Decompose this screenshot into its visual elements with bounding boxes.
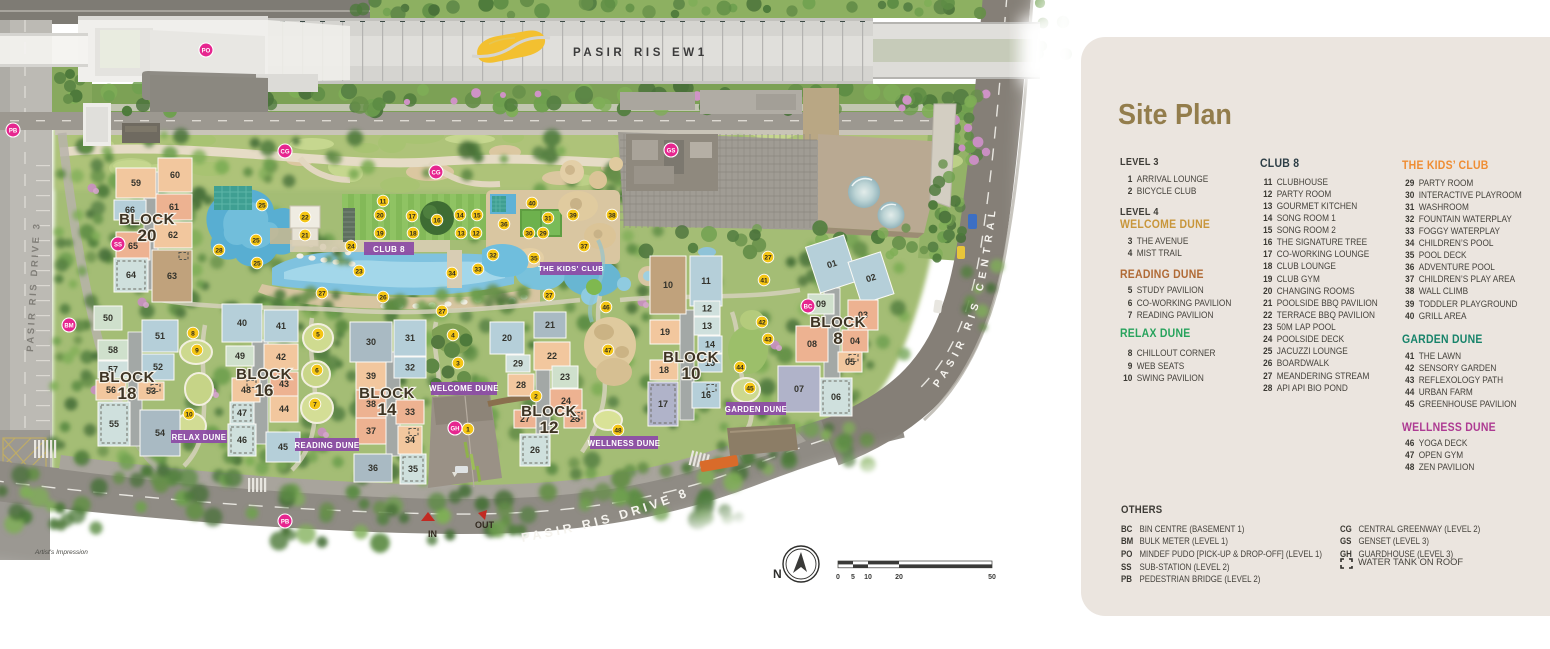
svg-text:44: 44 — [736, 364, 744, 371]
svg-text:3: 3 — [456, 360, 460, 367]
svg-text:44: 44 — [279, 404, 289, 414]
svg-text:27: 27 — [764, 254, 772, 261]
svg-text:12: 12 — [702, 304, 712, 314]
svg-text:40: 40 — [528, 200, 536, 207]
svg-text:CLUB 8: CLUB 8 — [373, 245, 405, 254]
svg-text:06: 06 — [831, 392, 841, 402]
svg-text:18: 18 — [118, 384, 137, 403]
svg-text:15: 15 — [473, 212, 481, 219]
svg-text:18: 18 — [409, 230, 417, 237]
svg-text:58: 58 — [108, 345, 118, 355]
svg-text:63: 63 — [167, 271, 177, 281]
svg-text:PB: PB — [9, 128, 18, 134]
svg-text:42: 42 — [758, 319, 766, 326]
svg-text:49: 49 — [235, 351, 245, 361]
svg-text:48: 48 — [614, 427, 622, 434]
svg-text:32: 32 — [405, 363, 415, 373]
svg-text:33: 33 — [405, 407, 415, 417]
svg-text:IN: IN — [428, 529, 437, 539]
svg-text:56: 56 — [106, 385, 116, 395]
svg-text:5: 5 — [316, 331, 320, 338]
svg-text:11: 11 — [380, 198, 387, 205]
svg-text:31: 31 — [544, 215, 552, 222]
svg-text:28: 28 — [516, 380, 526, 390]
svg-text:47: 47 — [604, 347, 612, 354]
svg-text:27: 27 — [438, 308, 446, 315]
svg-text:Artist's Impression: Artist's Impression — [34, 549, 88, 556]
svg-text:20: 20 — [502, 333, 512, 343]
svg-text:41: 41 — [276, 321, 286, 331]
svg-text:GARDEN DUNE: GARDEN DUNE — [725, 405, 787, 414]
svg-text:CG: CG — [281, 149, 290, 155]
svg-text:36: 36 — [500, 221, 508, 228]
svg-text:10: 10 — [682, 364, 701, 383]
svg-text:37: 37 — [366, 426, 376, 436]
svg-text:17: 17 — [658, 399, 668, 409]
svg-text:24: 24 — [347, 243, 355, 250]
svg-text:43: 43 — [764, 336, 772, 343]
svg-text:EW1: EW1 — [672, 47, 708, 59]
svg-text:BC: BC — [804, 304, 813, 310]
svg-text:39: 39 — [366, 371, 376, 381]
svg-text:25: 25 — [258, 202, 266, 209]
svg-text:16: 16 — [701, 390, 711, 400]
svg-text:SS: SS — [114, 242, 122, 248]
svg-text:40: 40 — [237, 318, 247, 328]
svg-text:0: 0 — [836, 574, 840, 581]
svg-text:OUT: OUT — [475, 520, 495, 530]
svg-text:1: 1 — [466, 426, 470, 433]
svg-text:41: 41 — [760, 277, 768, 284]
svg-text:48: 48 — [241, 385, 251, 395]
svg-text:PO: PO — [202, 48, 211, 54]
svg-text:30: 30 — [525, 230, 533, 237]
svg-text:20: 20 — [376, 212, 384, 219]
svg-text:22: 22 — [301, 214, 309, 221]
svg-text:4: 4 — [451, 332, 455, 339]
svg-text:10: 10 — [663, 280, 673, 290]
svg-text:31: 31 — [405, 333, 415, 343]
svg-text:23: 23 — [355, 268, 363, 275]
svg-text:12: 12 — [540, 418, 559, 437]
svg-text:60: 60 — [170, 170, 180, 180]
svg-text:PASIR: PASIR — [573, 47, 625, 59]
svg-text:42: 42 — [276, 352, 286, 362]
svg-text:07: 07 — [794, 384, 804, 394]
svg-text:39: 39 — [569, 212, 577, 219]
svg-text:10: 10 — [864, 574, 872, 581]
svg-text:11: 11 — [701, 276, 711, 286]
svg-text:28: 28 — [215, 247, 223, 254]
svg-text:33: 33 — [474, 266, 482, 273]
svg-text:38: 38 — [608, 212, 616, 219]
svg-text:THE KIDS' CLUB: THE KIDS' CLUB — [538, 264, 604, 273]
svg-text:25: 25 — [253, 260, 261, 267]
svg-text:09: 09 — [816, 299, 826, 309]
svg-text:WELCOME DUNE: WELCOME DUNE — [429, 384, 499, 393]
svg-text:RELAX DUNE: RELAX DUNE — [172, 433, 227, 442]
svg-text:READING DUNE: READING DUNE — [294, 441, 359, 450]
svg-text:RIS: RIS — [634, 47, 664, 59]
svg-text:9: 9 — [195, 347, 199, 354]
svg-text:20: 20 — [895, 574, 903, 581]
svg-text:WELLNESS DUNE: WELLNESS DUNE — [588, 439, 661, 448]
svg-text:55: 55 — [109, 419, 119, 429]
svg-text:35: 35 — [408, 464, 418, 474]
svg-text:08: 08 — [807, 339, 817, 349]
svg-text:46: 46 — [237, 435, 247, 445]
svg-text:16: 16 — [255, 381, 274, 400]
svg-text:GS: GS — [667, 148, 676, 154]
svg-text:GH: GH — [451, 426, 460, 432]
svg-text:21: 21 — [301, 232, 309, 239]
svg-text:14: 14 — [456, 212, 464, 219]
svg-text:35: 35 — [530, 255, 538, 262]
svg-text:50: 50 — [103, 313, 113, 323]
svg-text:20: 20 — [138, 226, 157, 245]
svg-text:36: 36 — [368, 463, 378, 473]
svg-text:10: 10 — [185, 411, 193, 418]
svg-text:27: 27 — [545, 292, 553, 299]
svg-text:34: 34 — [405, 435, 415, 445]
svg-text:12: 12 — [472, 230, 480, 237]
svg-text:51: 51 — [155, 331, 165, 341]
svg-text:54: 54 — [155, 428, 165, 438]
svg-text:53: 53 — [146, 386, 156, 396]
svg-text:5: 5 — [851, 574, 855, 581]
svg-text:26: 26 — [379, 294, 387, 301]
svg-text:45: 45 — [746, 385, 754, 392]
svg-text:8: 8 — [191, 330, 195, 337]
svg-text:26: 26 — [530, 445, 540, 455]
svg-text:05: 05 — [845, 357, 855, 367]
svg-text:14: 14 — [378, 400, 397, 419]
svg-text:13: 13 — [457, 230, 465, 237]
svg-text:N: N — [773, 567, 782, 581]
svg-text:65: 65 — [128, 241, 138, 251]
svg-text:PB: PB — [281, 519, 290, 525]
svg-text:27: 27 — [318, 290, 326, 297]
svg-text:13: 13 — [702, 321, 712, 331]
svg-text:47: 47 — [237, 408, 247, 418]
svg-text:CG: CG — [432, 170, 441, 176]
svg-text:16: 16 — [433, 217, 441, 224]
svg-text:62: 62 — [168, 230, 178, 240]
svg-text:BM: BM — [64, 323, 73, 329]
svg-text:50: 50 — [988, 574, 996, 581]
svg-text:7: 7 — [313, 401, 317, 408]
svg-text:29: 29 — [513, 359, 523, 369]
svg-text:46: 46 — [602, 304, 610, 311]
svg-text:2: 2 — [534, 393, 538, 400]
svg-text:8: 8 — [833, 329, 842, 348]
svg-text:17: 17 — [408, 213, 416, 220]
svg-text:45: 45 — [278, 442, 288, 452]
svg-text:18: 18 — [659, 365, 669, 375]
svg-text:29: 29 — [539, 230, 547, 237]
svg-text:19: 19 — [660, 327, 670, 337]
svg-text:22: 22 — [547, 351, 557, 361]
svg-text:14: 14 — [705, 340, 715, 350]
svg-text:6: 6 — [315, 367, 319, 374]
svg-text:19: 19 — [376, 230, 384, 237]
svg-text:34: 34 — [448, 270, 456, 277]
svg-text:64: 64 — [126, 270, 136, 280]
svg-text:59: 59 — [131, 178, 141, 188]
svg-text:04: 04 — [850, 336, 860, 346]
svg-text:25: 25 — [252, 237, 260, 244]
svg-text:32: 32 — [489, 252, 497, 259]
svg-text:37: 37 — [580, 243, 588, 250]
svg-text:21: 21 — [545, 320, 555, 330]
svg-text:30: 30 — [366, 337, 376, 347]
svg-text:23: 23 — [560, 372, 570, 382]
